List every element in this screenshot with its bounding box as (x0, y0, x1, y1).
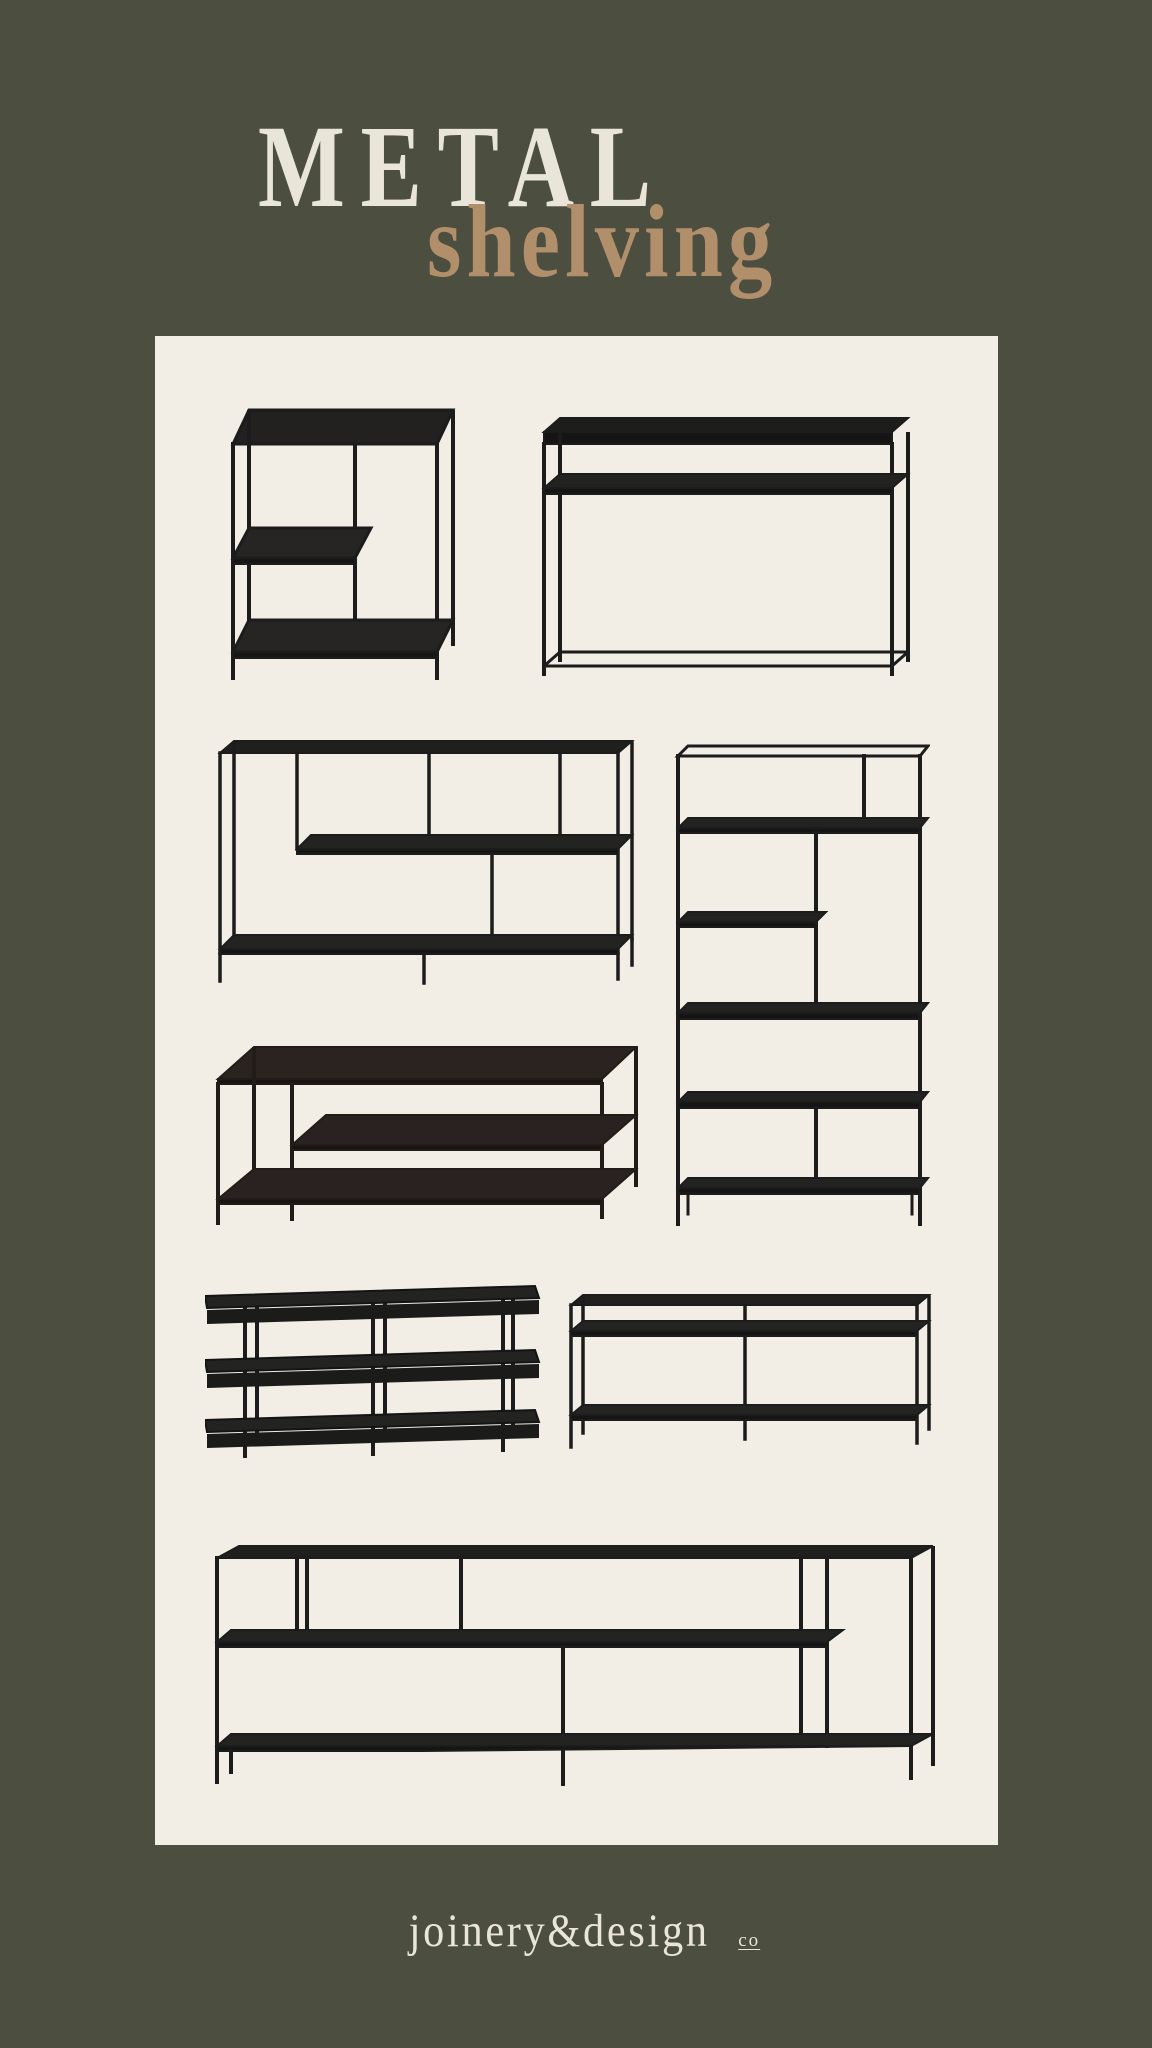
product-image-tall-staggered-etagere (668, 736, 930, 1238)
product-image-low-staggered-bookcase (212, 727, 637, 987)
product-image-divided-console-table (565, 1283, 935, 1455)
collage-panel (155, 336, 998, 1845)
product-image-offset-shelf-side-table (225, 398, 467, 692)
product-image-two-tier-coffee-table (212, 1039, 640, 1229)
product-image-slim-console-table (538, 404, 924, 686)
product-image-long-media-console (211, 1534, 940, 1792)
poster: METAL shelving (0, 0, 1152, 2048)
product-image-three-tier-open-shelf (205, 1284, 541, 1460)
brand-lockup: joinery&design co (0, 1908, 1152, 1955)
brand-name: joinery&design (409, 1908, 710, 1955)
brand-suffix: co (738, 1931, 760, 1950)
page-subtitle: shelving (427, 190, 777, 294)
